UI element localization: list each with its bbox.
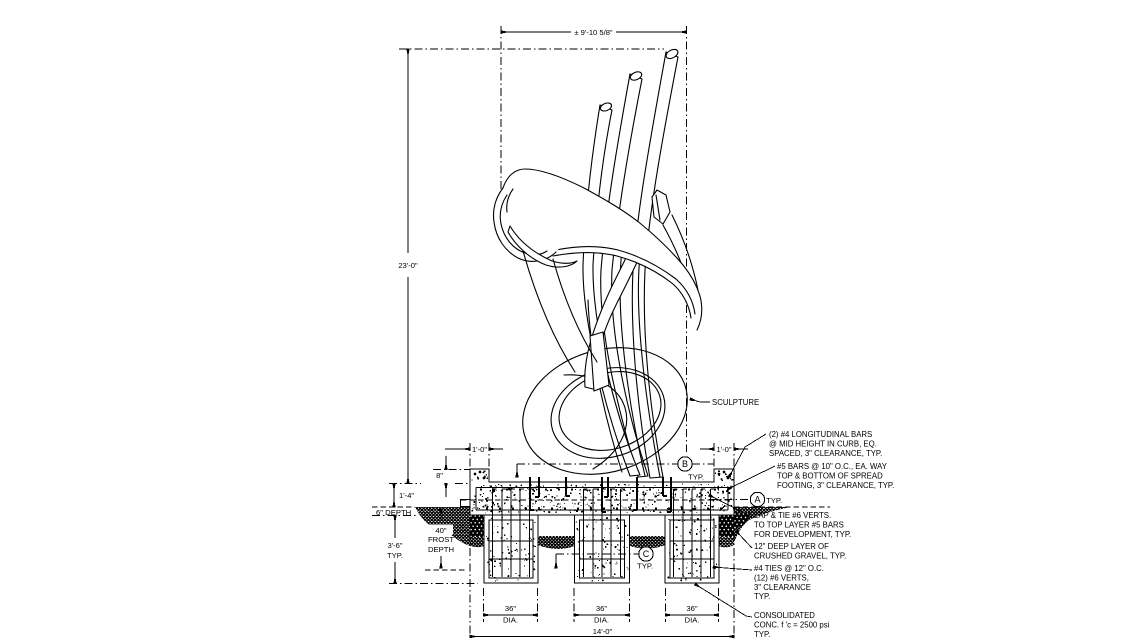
svg-text:B: B [682, 459, 688, 469]
svg-text:36": 36" [686, 604, 698, 613]
svg-text:23'-0": 23'-0" [398, 261, 418, 270]
svg-text:TYP.: TYP. [688, 473, 704, 482]
svg-text:FOOTING, 3" CLEARANCE, TYP.: FOOTING, 3" CLEARANCE, TYP. [777, 481, 894, 490]
svg-text:FOR DEVELOPMENT, TYP.: FOR DEVELOPMENT, TYP. [754, 530, 851, 539]
svg-text:SPACED, 3" CLEARANCE, TYP.: SPACED, 3" CLEARANCE, TYP. [769, 449, 882, 458]
svg-text:12" DEEP LAYER OF: 12" DEEP LAYER OF [754, 542, 829, 551]
svg-text:TYP.: TYP. [766, 496, 782, 505]
svg-text:1'-4": 1'-4" [399, 491, 414, 500]
svg-text:C: C [643, 549, 650, 559]
svg-text:1'-0": 1'-0" [472, 445, 487, 454]
svg-text:DIA.: DIA. [685, 616, 700, 625]
svg-text:@ MID HEIGHT IN CURB, EQ.: @ MID HEIGHT IN CURB, EQ. [769, 439, 877, 448]
svg-text:8": 8" [436, 471, 443, 480]
svg-text:TOP & BOTTOM OF SPREAD: TOP & BOTTOM OF SPREAD [777, 471, 883, 480]
svg-text:FROST: FROST [428, 535, 454, 544]
svg-text:± 9'-10 5/8": ± 9'-10 5/8" [574, 28, 613, 37]
svg-text:3" CLEARANCE: 3" CLEARANCE [754, 583, 811, 592]
svg-text:TYP.: TYP. [754, 630, 770, 639]
svg-text:CONSOLIDATED: CONSOLIDATED [754, 611, 815, 620]
svg-text:36": 36" [505, 604, 517, 613]
svg-text:SCULPTURE: SCULPTURE [712, 398, 759, 407]
svg-text:DIA.: DIA. [503, 616, 518, 625]
svg-text:A: A [754, 495, 760, 505]
svg-text:DIA.: DIA. [594, 616, 609, 625]
svg-text:CRUSHED GRAVEL, TYP.: CRUSHED GRAVEL, TYP. [754, 551, 846, 560]
svg-text:40": 40" [435, 526, 447, 535]
svg-text:36": 36" [596, 604, 608, 613]
svg-text:CONC. f 'c = 2500 psi: CONC. f 'c = 2500 psi [754, 620, 830, 629]
svg-text:DEPTH: DEPTH [428, 545, 454, 554]
svg-text:(12) #6 VERTS,: (12) #6 VERTS, [754, 573, 809, 582]
svg-text:TO TOP LAYER #5 BARS: TO TOP LAYER #5 BARS [754, 520, 844, 529]
svg-text:LAP & TIE #6 VERTS.: LAP & TIE #6 VERTS. [754, 511, 831, 520]
svg-text:#5 BARS @ 10" O.C., EA. WAY: #5 BARS @ 10" O.C., EA. WAY [777, 462, 888, 471]
svg-text:TYP.: TYP. [387, 551, 403, 560]
svg-text:1'-0": 1'-0" [716, 445, 731, 454]
svg-text:3'-6": 3'-6" [387, 541, 402, 550]
svg-text:(2) #4 LONGITUDINAL BARS: (2) #4 LONGITUDINAL BARS [769, 430, 872, 439]
svg-text:TYP.: TYP. [754, 592, 770, 601]
svg-text:TYP.: TYP. [637, 562, 653, 571]
svg-text:14'-0": 14'-0" [593, 627, 613, 636]
svg-text:#4 TIES @ 12" O.C.: #4 TIES @ 12" O.C. [754, 564, 824, 573]
